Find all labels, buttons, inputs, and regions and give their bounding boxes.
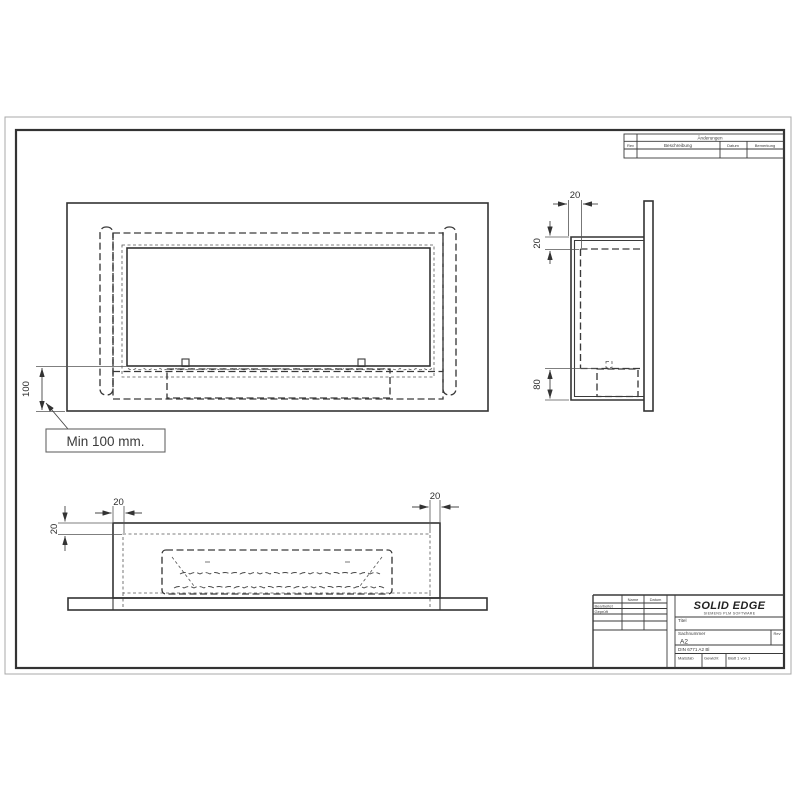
front-burner-hidden [167,369,390,398]
front-body-hidden [113,233,443,399]
bottom-burner-tray [162,550,392,594]
dim-side-upper: 20 [532,238,543,249]
front-view: 100 [21,203,488,412]
title-label: Titel [678,618,687,623]
bottom-view: 20 20 20 [49,491,487,610]
dim-bottom-right: 20 [430,491,441,502]
title-block-signatures: Name Datum Bearbeitet Geprüft [593,595,667,668]
dim-side-lower: 80 [532,379,543,390]
norm-reference: DIN 6771 A2 Bl [678,647,709,652]
dim-side-top: 20 [570,190,581,201]
bottom-left-dimension: 20 [95,497,142,533]
bottom-base-plate [68,598,487,610]
front-window-opening [127,248,430,366]
revision-col-date: Datum [727,143,739,148]
rev-label: Rev [774,631,781,636]
solid-edge-logo: SOLID EDGE [694,600,766,612]
side-body-inner [575,241,645,397]
callout-text: Min 100 mm. [66,434,144,449]
bottom-right-dimension: 20 [412,491,459,533]
revision-col-note: Bemerkung [755,143,775,148]
side-lower-dimension: 80 [532,369,596,401]
front-inner-hidden [122,245,434,377]
side-upper-dimension: 20 [532,221,579,264]
sheet-size: A2 [680,639,688,646]
side-wall-plate [644,201,653,411]
technical-drawing-canvas: Änderungen Rev Beschreibung Datum Bemerk… [0,0,800,800]
title-row-checked: Geprüft [595,609,609,614]
weight-label: Gewicht [704,656,719,661]
revision-table: Änderungen Rev Beschreibung Datum Bemerk… [624,134,784,158]
side-top-dimension: 20 [553,190,598,248]
sheet-number-label: Blatt 1 von 1 [728,656,751,661]
side-view: 20 20 80 [532,190,653,411]
front-left-bracket [100,227,113,395]
revision-col-rev: Rev [627,143,634,148]
side-clip-hidden [606,362,612,368]
title-block-info: SOLID EDGE SIEMENS PLM SOFTWARE Titel Sa… [675,595,784,668]
front-outer-plate [67,203,488,411]
bottom-inner-hidden [123,534,430,593]
front-height-dimension: 100 [21,367,126,412]
drawing-sheet: Änderungen Rev Beschreibung Datum Bemerk… [0,0,800,800]
scale-label: Maßstab [678,656,694,661]
side-burner-hidden [597,369,638,397]
title-col-date: Datum [650,597,662,602]
part-number-label: Sachnummer [678,631,706,636]
bottom-tray-wave-1 [180,573,380,575]
front-right-bracket [443,227,456,395]
title-col-name: Name [628,597,639,602]
sheet-frame [5,117,791,674]
side-body-outer [571,237,644,400]
title-row-edited: Bearbeitet [595,603,614,608]
dim-bottom-left: 20 [113,497,124,508]
revision-table-title: Änderungen [697,135,722,141]
dim-front-height: 100 [21,381,32,397]
dim-bottom-side: 20 [49,524,60,535]
bottom-tray-wave-2 [174,587,384,589]
solid-edge-logo-subtitle: SIEMENS PLM SOFTWARE [704,612,756,616]
title-block: Name Datum Bearbeitet Geprüft SOLID EDGE… [593,595,784,668]
revision-col-description: Beschreibung [664,143,693,148]
